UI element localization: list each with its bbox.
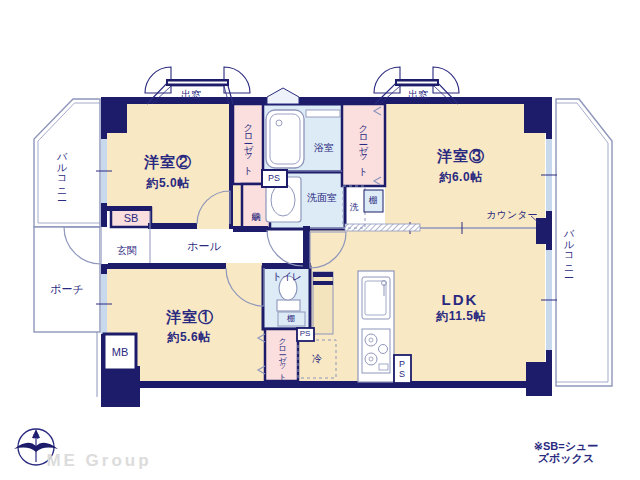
wall-entrance-top [101, 206, 152, 211]
vent-window [267, 88, 299, 104]
closet-room1-label: クローゼット [277, 332, 286, 378]
fridge-label: 冷 [312, 353, 322, 364]
pillar-bottom-left [101, 366, 140, 407]
footnote: ※SB=シューズボックス [529, 440, 603, 465]
pillar-top-right [524, 97, 552, 133]
bathroom-label: 浴室 [314, 142, 334, 153]
room3-name: 洋室③ [437, 148, 485, 165]
wall-washroom-bottom [233, 226, 268, 232]
entrance-label: 玄関 [117, 245, 137, 256]
closet-room2-label: クローゼット [243, 116, 254, 170]
toilet-tank [277, 300, 300, 311]
balcony-left-label: バルコニー [56, 145, 67, 195]
compass-north-label: N [33, 433, 39, 442]
shower-bar [306, 110, 340, 117]
toilet-label: トイレ [272, 271, 303, 282]
washroom-label: 洗面室 [307, 192, 337, 203]
room2-size: 約5.0帖 [146, 177, 189, 190]
pillar-bottom-right [526, 362, 552, 396]
pillar-top-left [101, 97, 127, 133]
floor-plan-page: バルコニー バルコニー ポーチ 玄関 SB ホール 洋室② 約5.0帖 洋室③ … [0, 0, 640, 480]
bay-window-right-label: 出窓 [408, 89, 428, 100]
shelf-washroom-label: 棚 [369, 196, 378, 206]
ldk-name: LDK [442, 292, 479, 309]
room3-size: 約6.0帖 [439, 171, 482, 184]
wall-top [101, 97, 552, 104]
room1-name: 洋室① [166, 309, 214, 326]
wall-hall-ldk [303, 226, 310, 269]
washer-label: 洗 [350, 202, 359, 212]
room1-size: 約5.6帖 [167, 331, 210, 344]
shoe-box-label: SB [124, 212, 139, 224]
wall-hall-top [148, 223, 197, 229]
room2-name: 洋室② [144, 154, 192, 171]
meter-box-label: MB [112, 346, 129, 358]
hall-label: ホール [187, 240, 221, 252]
ps1-label: PS [268, 173, 280, 183]
wall-room1-top-left [101, 263, 226, 269]
wall-bottom [101, 381, 552, 388]
balcony-right-label: バルコニー [563, 222, 574, 272]
shelf-toilet-label: 棚 [287, 315, 295, 324]
porch-label: ポーチ [50, 283, 84, 295]
stove [362, 329, 390, 373]
floor-plan-drawing [0, 0, 640, 480]
brand-logo-text: ME Group [46, 451, 151, 470]
closet-room3-label: クローゼット [358, 117, 369, 171]
porch-outline [34, 227, 100, 397]
ldk-size: 約11.5帖 [436, 310, 486, 323]
counter-label: カウンター [487, 209, 538, 220]
bay-window-left-label: 出窓 [181, 89, 201, 100]
ps3-label: P S [399, 359, 405, 379]
ps2-label: PS [300, 330, 311, 339]
